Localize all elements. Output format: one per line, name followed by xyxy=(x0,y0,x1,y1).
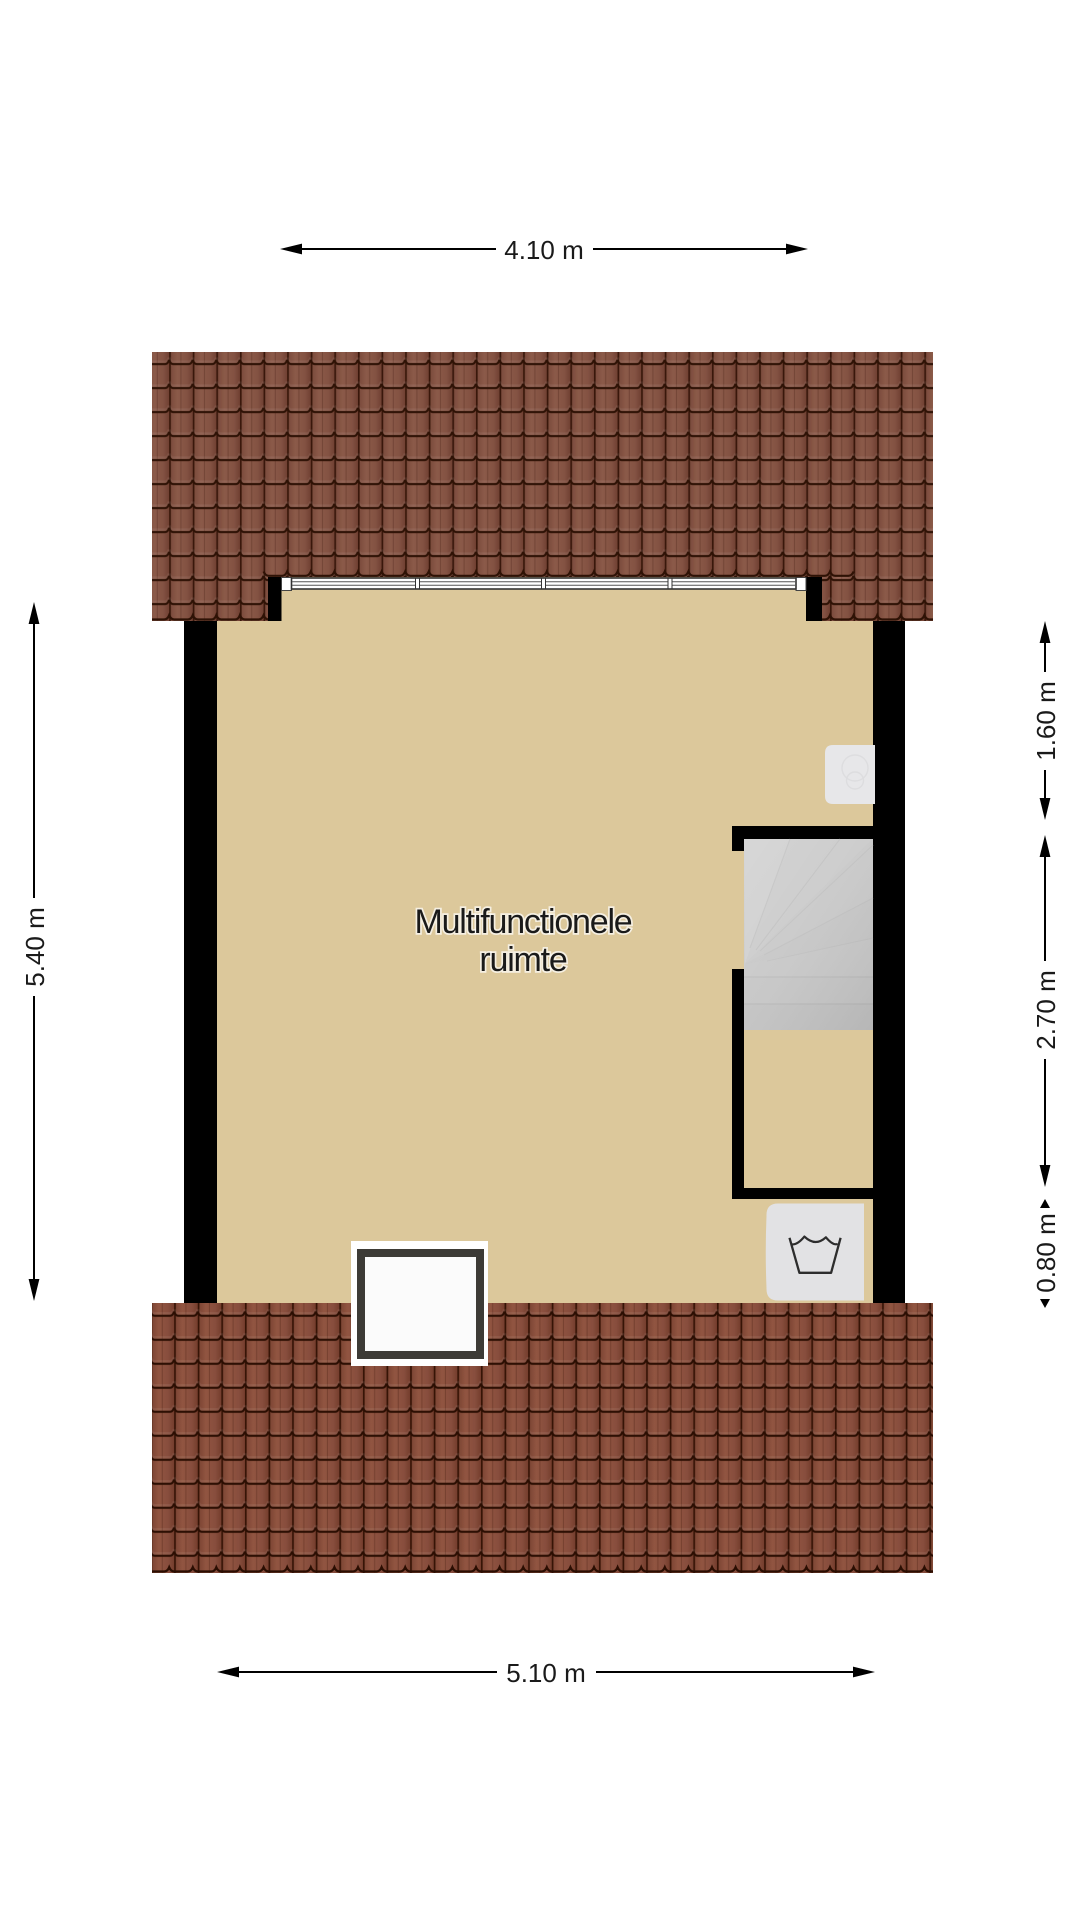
svg-text:2.70 m: 2.70 m xyxy=(1031,970,1061,1050)
svg-text:Multifunctionele: Multifunctionele xyxy=(414,903,631,941)
svg-text:1.60 m: 1.60 m xyxy=(1031,681,1061,761)
svg-text:4.10 m: 4.10 m xyxy=(504,235,584,265)
svg-text:5.10 m: 5.10 m xyxy=(506,1658,586,1688)
svg-text:5.40 m: 5.40 m xyxy=(20,907,50,987)
svg-text:0.80 m: 0.80 m xyxy=(1031,1213,1061,1293)
svg-text:ruimte: ruimte xyxy=(479,941,567,979)
